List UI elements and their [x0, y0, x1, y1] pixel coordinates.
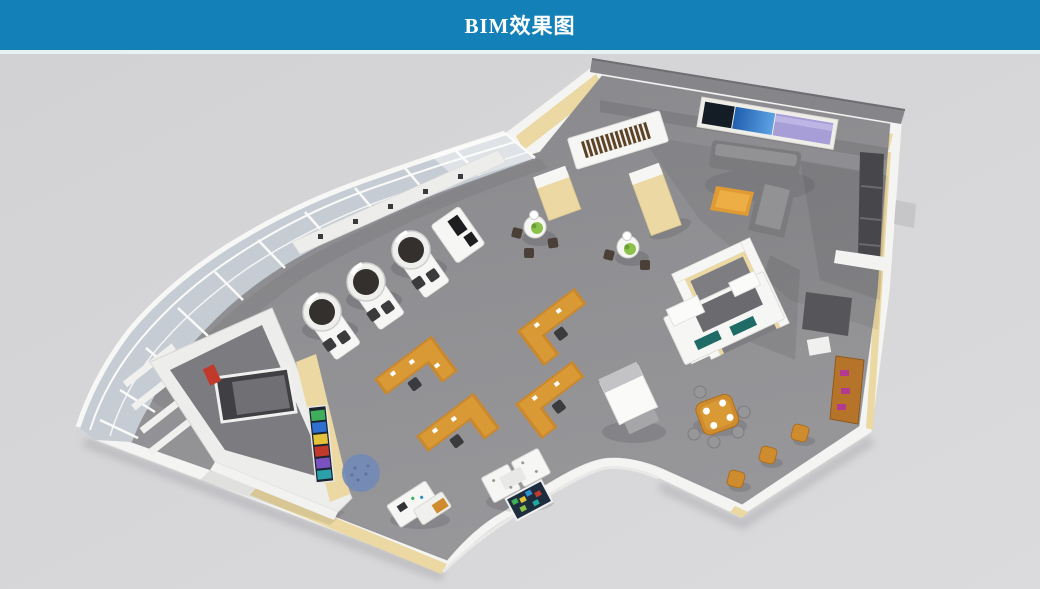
blue-rug [342, 454, 380, 492]
floor-plan-rendering [0, 54, 1040, 589]
bim-render-canvas [0, 54, 1040, 589]
title-bar: BIM效果图 [0, 0, 1040, 50]
wood-shelf-unit [830, 356, 864, 424]
bim-render-page: BIM效果图 [0, 0, 1040, 589]
page-title: BIM效果图 [465, 10, 576, 40]
dark-console [802, 292, 852, 336]
exterior-unit-box [894, 200, 916, 228]
